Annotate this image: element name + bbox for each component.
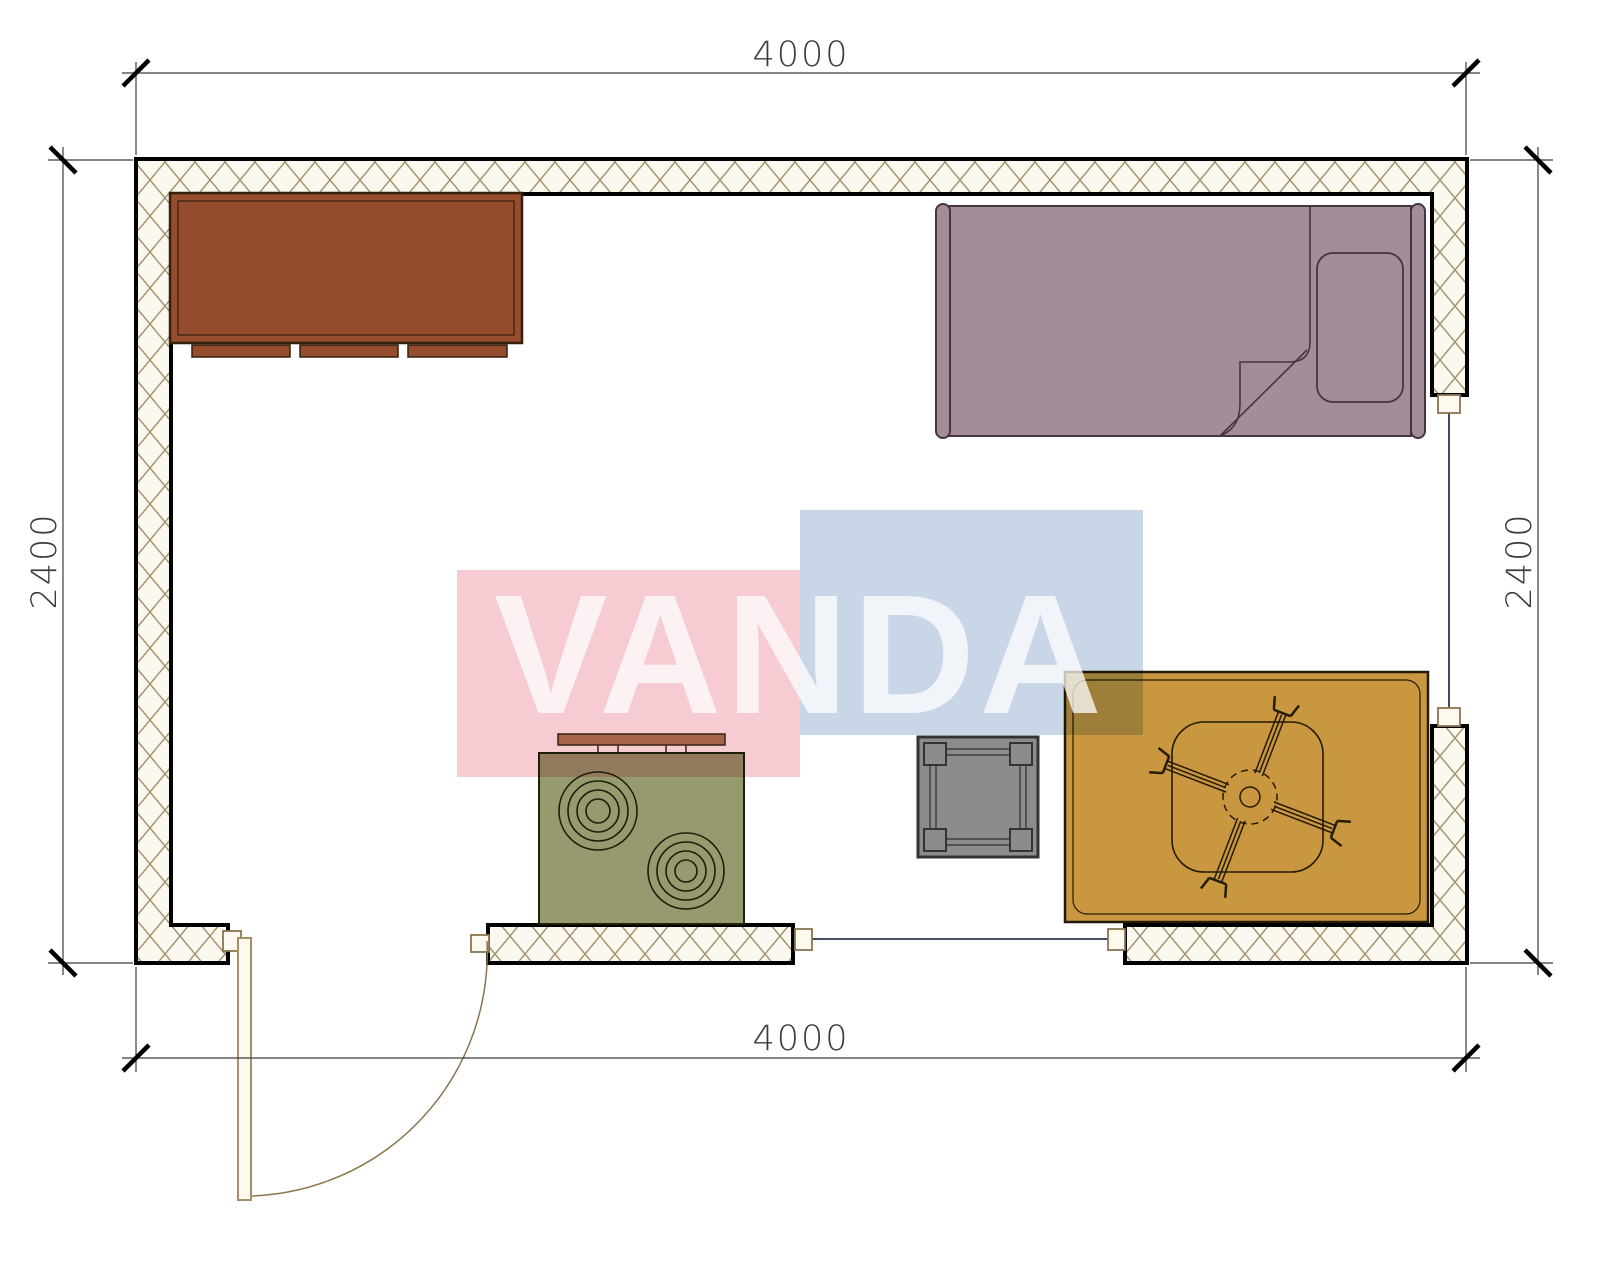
window-frame-end bbox=[1438, 395, 1460, 413]
wall-bottom-middle bbox=[488, 925, 793, 963]
dimension-label-top: 4000 bbox=[752, 35, 849, 75]
cabinet-foot bbox=[300, 345, 398, 357]
door-leaf bbox=[238, 938, 251, 1200]
door bbox=[223, 931, 489, 1200]
dimension-label-bottom: 4000 bbox=[752, 1019, 849, 1059]
dimension-label-left: 2400 bbox=[25, 512, 65, 609]
window-bottom bbox=[795, 929, 1125, 950]
pillow bbox=[1317, 253, 1403, 402]
cabinet-foot bbox=[192, 345, 290, 357]
dimension-label-right: 2400 bbox=[1500, 512, 1540, 609]
bed bbox=[936, 204, 1425, 438]
dimension-top: 4000 bbox=[122, 35, 1480, 155]
window-frame-end bbox=[1108, 929, 1125, 950]
window-frame-end bbox=[1438, 708, 1460, 726]
cabinet-foot bbox=[408, 345, 507, 357]
door-swing-arc bbox=[251, 941, 487, 1196]
window-right bbox=[1438, 395, 1460, 726]
dimension-bottom: 4000 bbox=[122, 967, 1480, 1072]
cabinet-body bbox=[170, 193, 522, 343]
bed-rail-right bbox=[1411, 204, 1425, 438]
dimension-left: 2400 bbox=[25, 147, 133, 976]
bed-rail-left bbox=[936, 204, 950, 438]
window-frame-end bbox=[795, 929, 812, 950]
side-table bbox=[918, 737, 1038, 857]
dimension-right: 2400 bbox=[1470, 147, 1553, 976]
watermark-text: VANDA bbox=[450, 570, 1150, 740]
floor-plan-page: 4000 4000 2400 2400 VANDA bbox=[0, 0, 1600, 1280]
door-strike-block bbox=[471, 935, 489, 952]
cabinet bbox=[170, 193, 522, 357]
